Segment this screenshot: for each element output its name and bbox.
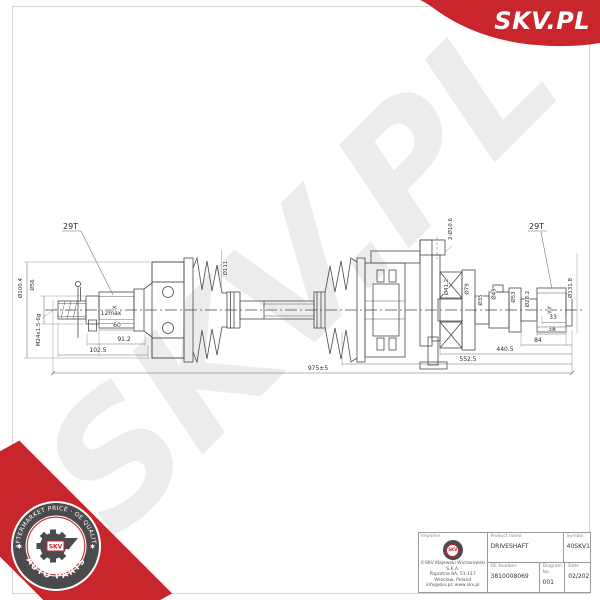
company-contact: info@skv.pl; www.skv.pl: [419, 583, 487, 589]
company-name: ©SKV Majewski Wicharowski S.K.A.: [419, 561, 487, 572]
dia-111-label: Ø111: [222, 261, 229, 276]
brand-logo-text: SKV.PL: [494, 7, 590, 35]
title-block-logo-center: SKV: [446, 544, 459, 557]
inner-joint-housing: [365, 251, 420, 357]
dim-38: 38: [548, 326, 556, 333]
date-cell: Date 02/2025: [565, 563, 590, 592]
symbol-label: Symbol: [567, 534, 587, 540]
symbol-cell: Symbol 40SKV139: [564, 533, 590, 562]
thread-label: M24x1.5-6g: [36, 314, 42, 347]
drawing-sheet: SKV.PL: [0, 0, 600, 600]
dia-56-label: Ø56: [29, 279, 36, 291]
skv-auto-parts-badge: AFTERMARKET PRICE · OE QUALITY AUTO PART…: [10, 500, 102, 592]
support-bearing-flange: [420, 237, 462, 369]
title-block: Importer SKV ©SKV Majewski Wicharowski S…: [418, 532, 591, 593]
diagram-no-cell: Diagram No. 001: [540, 563, 566, 592]
dim-975: 975±5: [308, 365, 328, 372]
oe-number-value: 3810008069: [491, 573, 536, 580]
diagram-no-label: Diagram No.: [543, 564, 562, 576]
dia-41-label: Ø41.2: [443, 279, 450, 296]
date-label: Date: [568, 564, 587, 570]
dim-102: 102.5: [89, 347, 106, 354]
product-name-label: Product name: [491, 534, 560, 540]
dia-79-label: Ø79: [464, 283, 471, 295]
bolt-holes-label: 2-Ø10.6: [447, 217, 454, 240]
symbol-value: 40SKV139: [567, 543, 587, 550]
right-length-dimensions: 33 38 84 440.5 552.5: [342, 314, 572, 374]
dia-131-label: Ø131.8: [567, 277, 574, 298]
dia-28-label: Ø28.2: [524, 291, 531, 308]
spline-count-right: 29T: [529, 222, 544, 231]
dim-12max: 12max: [101, 310, 122, 317]
oe-number-cell: OE Number 3810008069: [488, 563, 540, 592]
dim-440: 440.5: [496, 346, 513, 353]
holes-leader: [445, 246, 452, 252]
dim-552: 552.5: [459, 356, 476, 363]
dia-100-label: Ø100.4: [17, 277, 24, 298]
brand-banner: SKV.PL: [420, 0, 600, 48]
dia-53-label: Ø53: [510, 291, 517, 303]
left-length-dimensions: 12max 60 91.2 102.5: [58, 310, 148, 357]
title-block-importer-cell: Importer SKV ©SKV Majewski Wicharowski S…: [419, 533, 488, 592]
dim-33: 33: [549, 314, 557, 321]
spline-count-left: 29T: [63, 222, 78, 231]
diagram-no-value: 001: [543, 579, 562, 586]
importer-label: Importer: [421, 534, 441, 539]
badge-star-right-icon: ✱: [90, 544, 95, 551]
dim-91: 91.2: [117, 336, 131, 343]
dim-60: 60: [113, 322, 121, 329]
title-block-logo: SKV: [443, 540, 463, 560]
dia-35-label: Ø35: [477, 294, 484, 306]
badge-star-left-icon: ✱: [17, 544, 22, 551]
date-value: 02/2025: [568, 573, 587, 580]
dim-84: 84: [534, 337, 542, 344]
oe-number-label: OE Number: [491, 564, 536, 570]
title-block-logo-text: SKV: [448, 548, 457, 552]
product-name-cell: Product name DRIVESHAFT: [488, 533, 564, 562]
product-name-value: DRIVESHAFT: [491, 543, 560, 550]
badge-center-text: SKV: [49, 544, 63, 551]
company-address: Paprotna 8A, 51-117 Wrocław, Poland: [419, 572, 487, 583]
dia-49-label: Ø49: [491, 288, 498, 300]
